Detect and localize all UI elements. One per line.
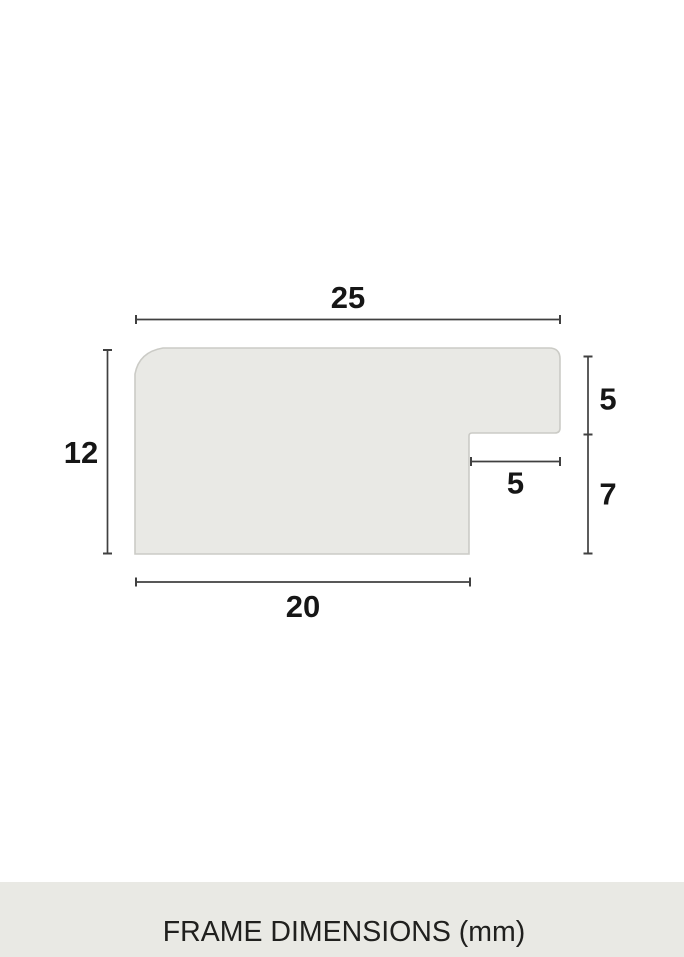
svg-text:7: 7 <box>599 477 616 512</box>
svg-text:20: 20 <box>286 589 320 624</box>
svg-text:25: 25 <box>331 280 365 315</box>
svg-text:12: 12 <box>64 435 98 470</box>
svg-text:5: 5 <box>507 466 524 501</box>
svg-text:5: 5 <box>599 382 616 417</box>
